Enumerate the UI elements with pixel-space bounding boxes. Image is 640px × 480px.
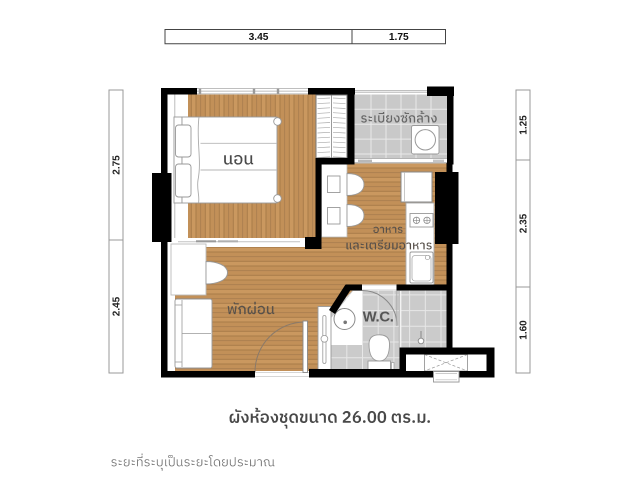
svg-text:2.75: 2.75	[112, 155, 123, 175]
svg-text:2.45: 2.45	[112, 296, 123, 316]
svg-text:1.75: 1.75	[389, 32, 409, 43]
svg-text:3.45: 3.45	[249, 32, 269, 43]
svg-text:1.25: 1.25	[519, 115, 530, 135]
svg-text:W.C.: W.C.	[363, 309, 394, 325]
svg-text:2.35: 2.35	[519, 213, 530, 233]
svg-text:1.60: 1.60	[519, 320, 530, 340]
